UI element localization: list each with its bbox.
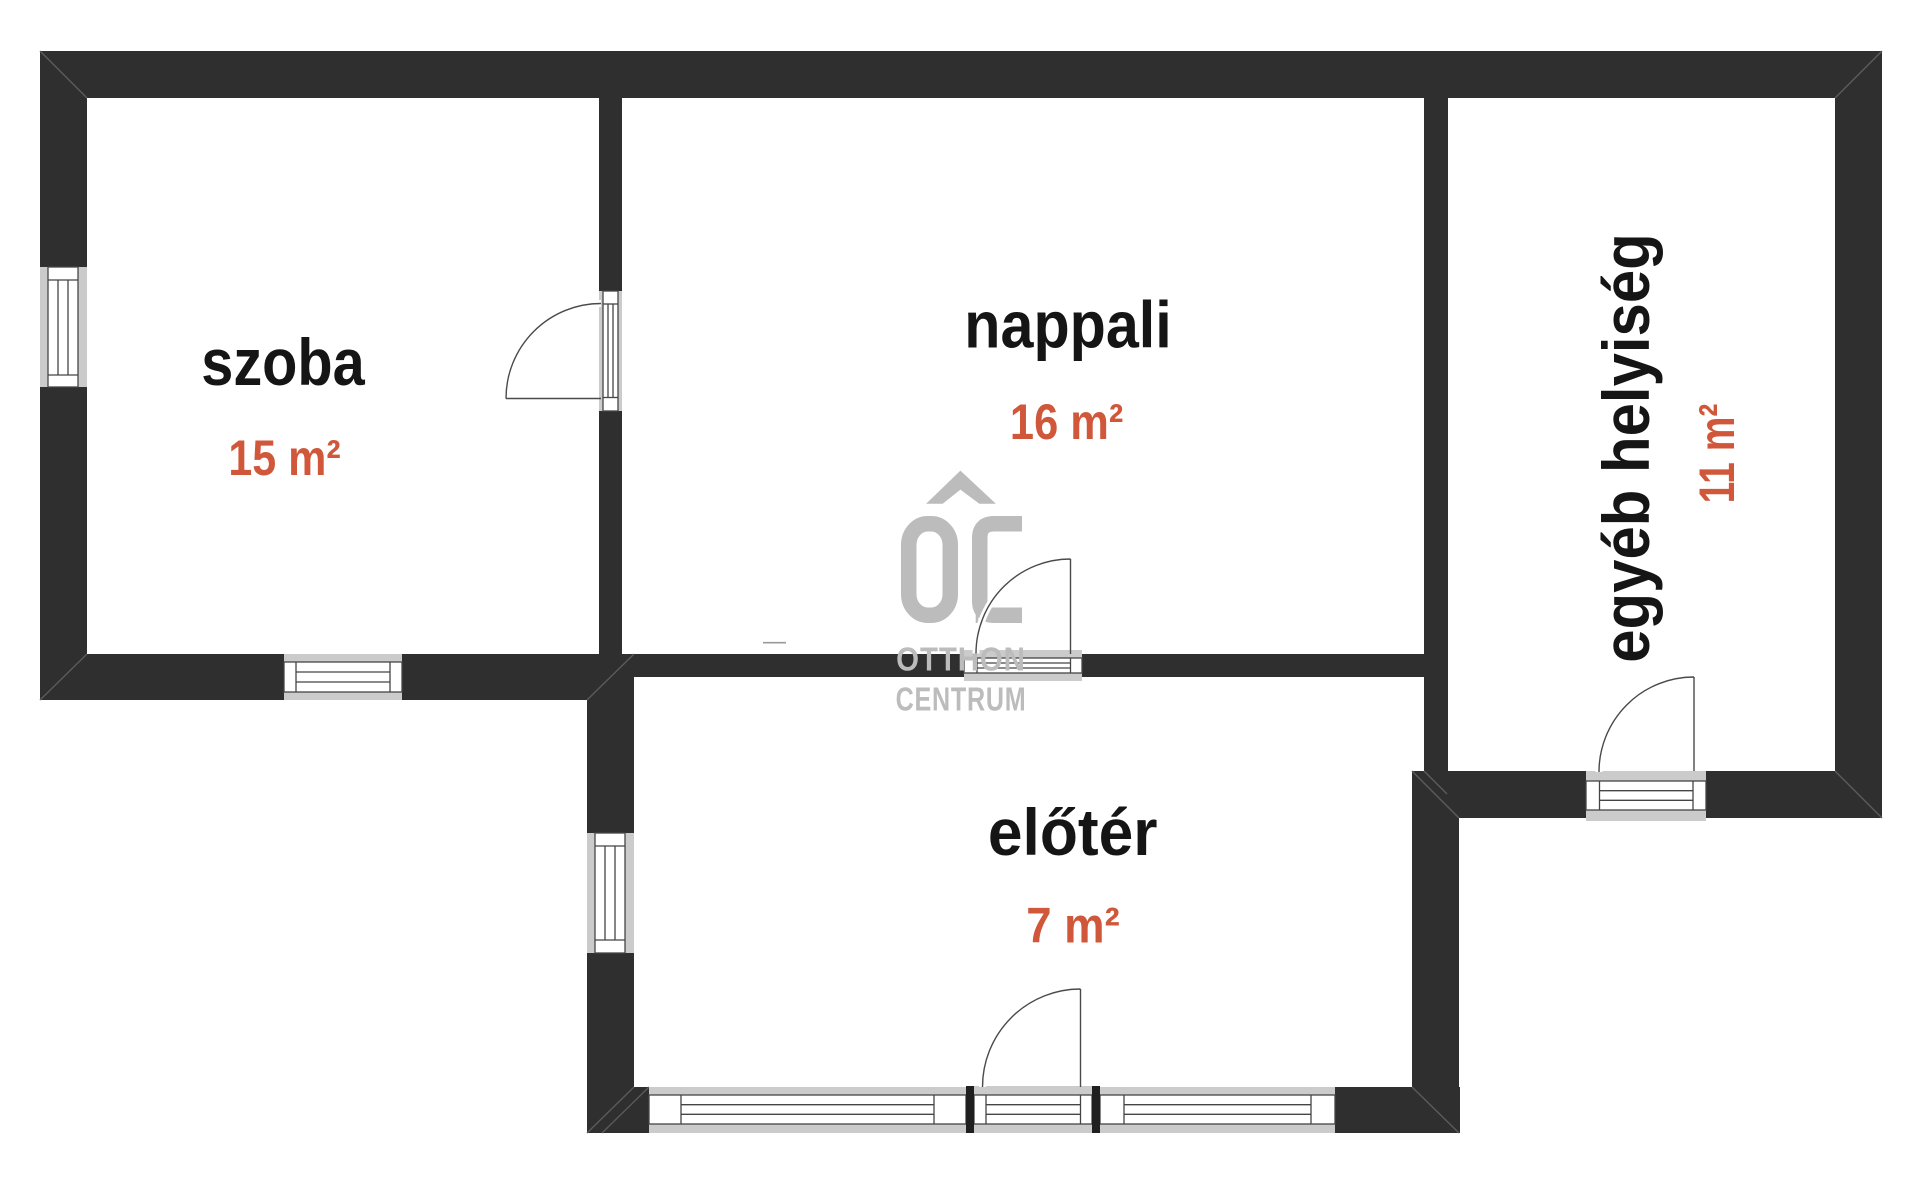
svg-text:egyéb helyiség: egyéb helyiség: [1590, 233, 1663, 663]
svg-text:előtér: előtér: [988, 795, 1158, 869]
svg-text:15 m²: 15 m²: [228, 430, 340, 486]
svg-text:CENTRUM: CENTRUM: [896, 681, 1027, 718]
svg-text:11 m²: 11 m²: [1688, 404, 1745, 504]
svg-text:16 m²: 16 m²: [1010, 394, 1123, 450]
svg-text:szoba: szoba: [201, 326, 365, 399]
svg-text:nappali: nappali: [964, 289, 1171, 363]
svg-text:OTTHON: OTTHON: [896, 640, 1026, 678]
svg-text:7 m²: 7 m²: [1026, 899, 1120, 954]
